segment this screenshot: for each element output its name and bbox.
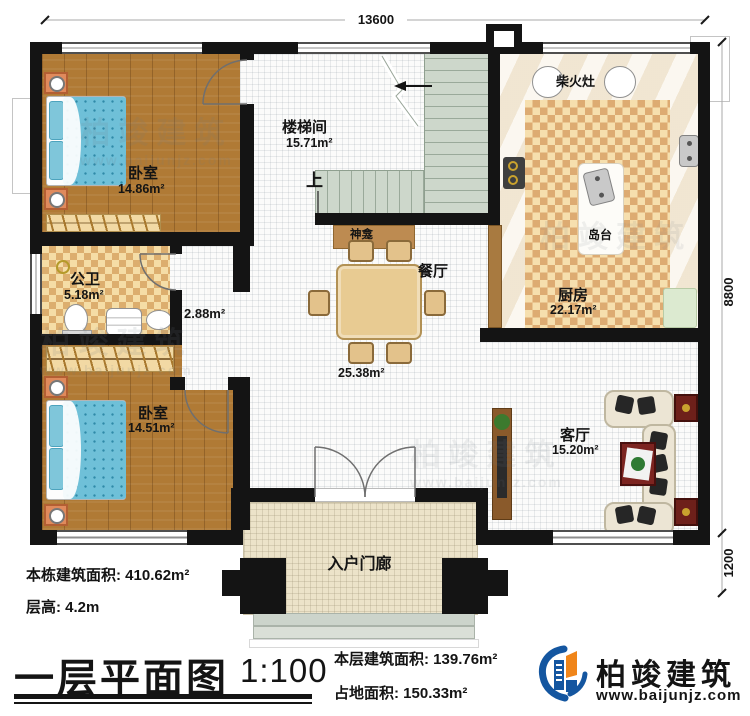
room-label-dining: 餐厅 <box>418 260 448 281</box>
wall <box>170 377 185 390</box>
floor-area-note: 本层建筑面积: 139.76m² <box>334 648 497 669</box>
wall <box>30 232 254 246</box>
nightstand <box>44 72 68 94</box>
wall <box>488 54 500 225</box>
cooktop-burner <box>508 175 518 185</box>
window <box>57 530 187 545</box>
wall <box>228 377 250 390</box>
wall <box>240 54 254 60</box>
dining-chair <box>308 290 330 316</box>
wall <box>233 232 250 292</box>
room-label-porch: 入户门廊 <box>243 550 476 574</box>
room-area-kitchen: 22.17m² <box>550 303 597 317</box>
nightstand <box>44 188 68 210</box>
window <box>30 254 42 314</box>
wood-stove-label: 柴火灶 <box>556 71 595 90</box>
room-area-bedroom2: 14.51m² <box>128 421 175 435</box>
porch-step <box>249 639 479 648</box>
plant-icon <box>494 414 510 430</box>
room-label-stairwell: 楼梯间 <box>282 116 327 137</box>
sofa-pillow <box>637 396 656 415</box>
island-label: 岛台 <box>588 226 612 243</box>
floor-plan-page: 柏竣建筑 www.baijunjz.com 柏竣建筑 www.baijunjz.… <box>0 0 750 716</box>
building-area-note: 本栋建筑面积: 410.62m² <box>26 564 189 585</box>
chimney-flue <box>494 31 514 47</box>
title-underline <box>14 694 312 699</box>
wall <box>170 246 182 254</box>
kitchen-sink <box>679 135 699 167</box>
bed-pillow <box>49 141 64 180</box>
stair-flight-bottom <box>315 170 424 216</box>
entry-door-threshold <box>315 488 415 502</box>
building-area-value: 410.62m² <box>125 567 189 584</box>
ceiling-lamp-icon <box>56 260 70 274</box>
wardrobe <box>46 346 174 372</box>
pantry-cabinet <box>488 225 502 328</box>
dining-chair <box>424 290 446 316</box>
plan-scale: 1:100 <box>240 652 328 690</box>
sofa-pillow <box>615 505 635 525</box>
wall <box>30 334 182 345</box>
dimension-right: 8800 <box>721 263 737 321</box>
room-area-bathroom: 5.18m² <box>64 288 104 302</box>
cooktop-burner <box>508 161 518 171</box>
footprint-label: 占地面积: <box>334 685 399 702</box>
washing-machine <box>106 308 142 336</box>
wardrobe <box>46 214 161 232</box>
refrigerator <box>663 288 697 328</box>
room-label-bedroom2: 卧室 <box>138 402 168 423</box>
window <box>298 42 430 54</box>
room-label-kitchen: 厨房 <box>558 284 588 305</box>
plant-icon <box>631 457 645 471</box>
wall <box>415 488 488 502</box>
floor-height-label: 层高: <box>26 599 61 616</box>
room-area-dining: 25.38m² <box>338 366 385 380</box>
porch-column <box>486 570 508 596</box>
floor-area-label: 本层建筑面积: <box>334 651 429 668</box>
room-area-stairwell: 15.71m² <box>286 136 333 150</box>
dining-chair <box>348 342 374 364</box>
footprint-value: 150.33m² <box>403 685 467 702</box>
porch-step <box>253 626 475 639</box>
wall <box>698 42 710 545</box>
wall <box>315 213 488 225</box>
bed-pillow <box>49 448 64 490</box>
brand-website: www.baijunjz.com <box>596 687 741 704</box>
room-label-bedroom1: 卧室 <box>128 162 158 183</box>
stair-flight-right <box>424 54 489 215</box>
room-label-bathroom: 公卫 <box>70 268 100 289</box>
side-table <box>674 394 698 422</box>
wall <box>480 328 710 342</box>
nightstand <box>44 376 68 398</box>
floor-height-value: 4.2m <box>65 599 99 616</box>
stairs-up-label: 上 <box>306 166 323 191</box>
dimension-top: 13600 <box>345 12 407 28</box>
bed-pillow <box>49 405 64 447</box>
dimension-porch: 1200 <box>721 534 737 592</box>
floor-height-note: 层高: 4.2m <box>26 596 99 617</box>
room-label-living: 客厅 <box>560 424 590 445</box>
room-area-bedroom1: 14.86m² <box>118 182 165 196</box>
tv <box>497 436 507 498</box>
sofa-pillow <box>614 394 634 414</box>
wall <box>231 488 243 545</box>
wood-stove-burner <box>604 66 636 98</box>
bathroom-sink <box>146 310 172 330</box>
window <box>62 42 202 54</box>
wall <box>235 488 315 502</box>
room-area-corridor: 2.88m² <box>184 306 225 321</box>
floor-area-value: 139.76m² <box>433 651 497 668</box>
side-table <box>674 498 698 526</box>
window <box>543 42 690 54</box>
room-area-living: 15.20m² <box>552 443 599 457</box>
dining-table <box>336 264 422 340</box>
wall <box>476 502 488 530</box>
porch-column <box>222 570 242 596</box>
dining-chair <box>386 342 412 364</box>
shrine-label: 神龛 <box>350 226 373 242</box>
bedroom2-floor <box>182 390 233 530</box>
wall <box>240 104 254 246</box>
nightstand <box>44 504 68 526</box>
building-area-label: 本栋建筑面积: <box>26 567 121 584</box>
title-underline <box>14 702 312 704</box>
dining-chair <box>386 240 412 262</box>
brand-logo-icon <box>536 642 590 708</box>
footprint-note: 占地面积: 150.33m² <box>334 682 467 703</box>
sofa-pillow <box>636 505 656 525</box>
window <box>553 530 673 545</box>
bed-pillow <box>49 101 64 140</box>
wall <box>170 290 182 334</box>
porch-step <box>253 613 475 626</box>
dining-chair <box>348 240 374 262</box>
